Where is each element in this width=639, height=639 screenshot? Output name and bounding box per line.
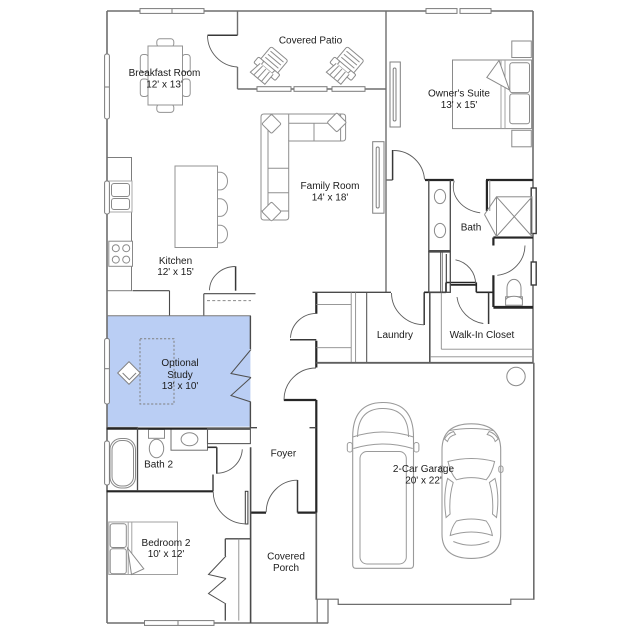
svg-text:2-Car Garage: 2-Car Garage: [393, 464, 455, 475]
svg-text:Optional: Optional: [161, 358, 198, 369]
svg-text:13' x 15': 13' x 15': [441, 100, 478, 111]
svg-text:Breakfast Room: Breakfast Room: [129, 68, 201, 79]
svg-text:Bath 2: Bath 2: [144, 460, 173, 471]
svg-text:Laundry: Laundry: [377, 330, 413, 341]
svg-text:Covered Patio: Covered Patio: [279, 36, 343, 47]
svg-text:Covered: Covered: [267, 552, 305, 563]
svg-text:Foyer: Foyer: [271, 449, 297, 460]
svg-text:Kitchen: Kitchen: [159, 256, 192, 267]
svg-text:Family Room: Family Room: [301, 181, 360, 192]
svg-text:12' x 15': 12' x 15': [157, 267, 194, 278]
svg-text:Owner's Suite: Owner's Suite: [428, 89, 490, 100]
svg-text:Bath: Bath: [461, 223, 482, 234]
svg-text:10' x 12': 10' x 12': [148, 549, 185, 560]
svg-text:Bedroom 2: Bedroom 2: [142, 538, 191, 549]
svg-text:Study: Study: [167, 370, 193, 381]
svg-text:14' x 18': 14' x 18': [312, 193, 349, 204]
svg-text:Porch: Porch: [273, 563, 299, 574]
svg-text:Walk-In Closet: Walk-In Closet: [450, 330, 515, 341]
svg-text:12' x 13': 12' x 13': [146, 80, 183, 91]
svg-text:20' x 22': 20' x 22': [405, 476, 442, 487]
svg-text:13' x 10': 13' x 10': [162, 381, 199, 392]
